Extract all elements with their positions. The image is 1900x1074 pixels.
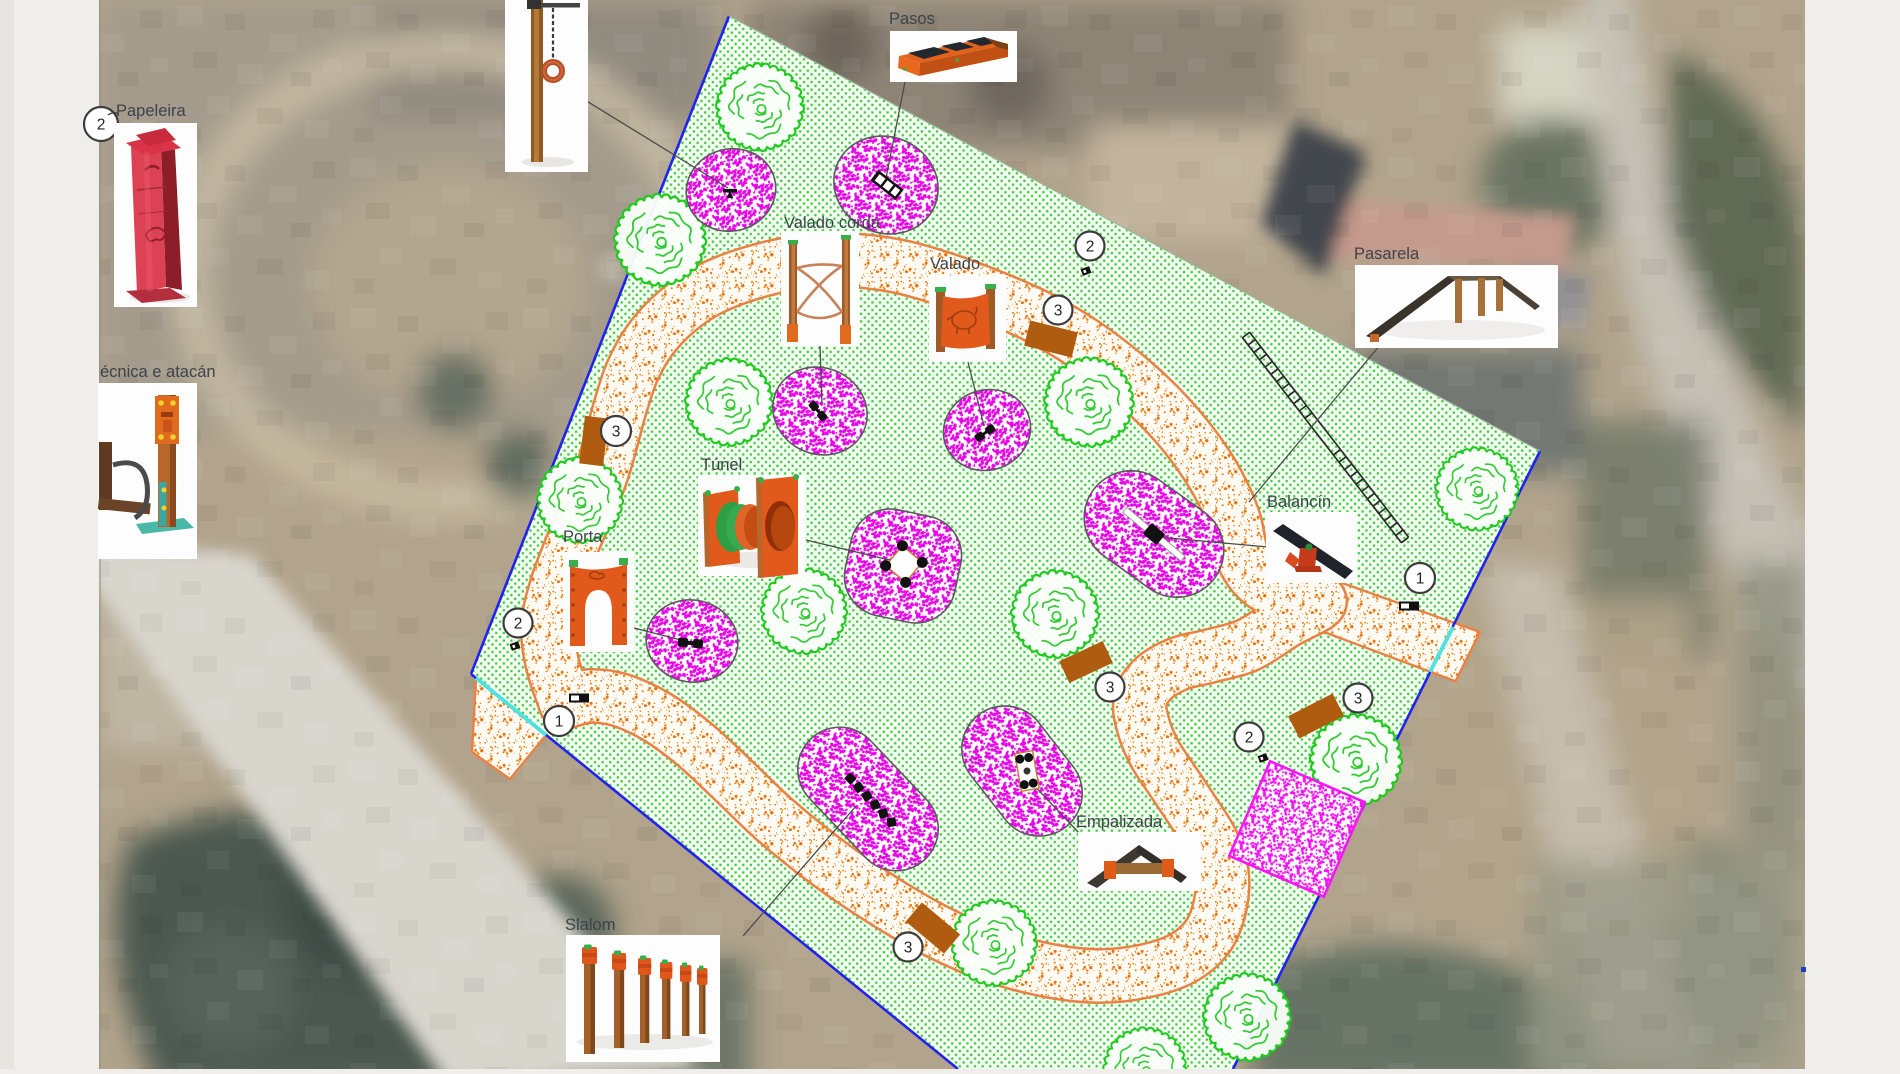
svg-text:Túnel: Túnel [701, 456, 742, 474]
svg-text:1: 1 [555, 714, 564, 731]
svg-text:Balancín: Balancín [1267, 493, 1331, 511]
svg-text:Porta: Porta [563, 528, 603, 546]
svg-text:Pasos: Pasos [889, 10, 935, 28]
svg-text:Valado: Valado [930, 255, 980, 273]
svg-text:Slalom: Slalom [565, 916, 615, 934]
svg-text:3: 3 [1106, 680, 1115, 697]
svg-text:écnica e atacán: écnica e atacán [100, 363, 216, 381]
svg-text:2: 2 [1086, 239, 1095, 256]
svg-text:Empalizada: Empalizada [1076, 813, 1163, 831]
svg-text:2: 2 [97, 117, 106, 134]
svg-text:3: 3 [904, 940, 913, 957]
svg-text:3: 3 [612, 424, 621, 441]
svg-text:Papeleira: Papeleira [116, 102, 187, 120]
svg-text:2: 2 [1245, 730, 1254, 747]
svg-text:2: 2 [514, 616, 523, 633]
svg-text:3: 3 [1054, 303, 1063, 320]
svg-text:Pasarela: Pasarela [1354, 245, 1420, 263]
svg-text:Valado corda: Valado corda [784, 214, 881, 232]
svg-text:1: 1 [1416, 571, 1425, 588]
svg-text:3: 3 [1354, 691, 1363, 708]
